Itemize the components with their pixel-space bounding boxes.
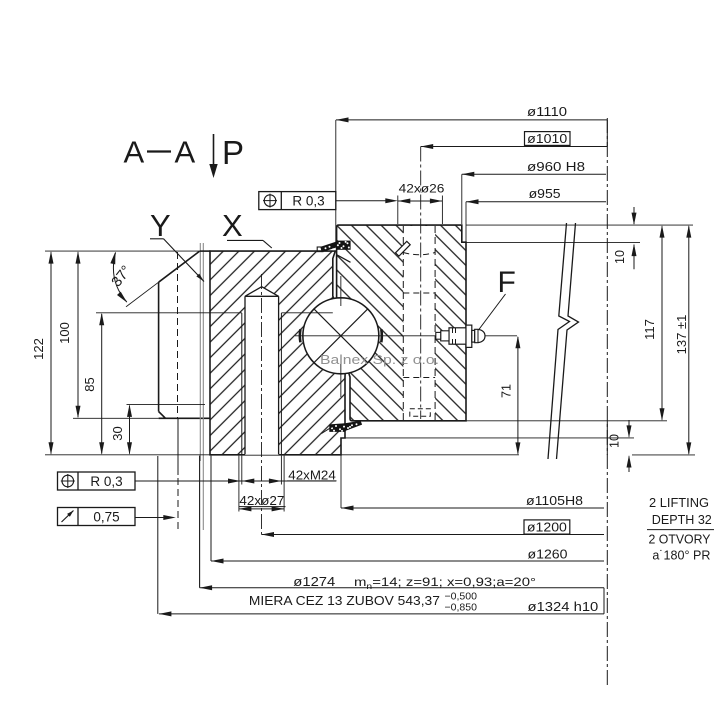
svg-text:ø1110: ø1110 [527,104,567,119]
svg-text:42xM24: 42xM24 [288,468,336,482]
svg-text:ø1105H8: ø1105H8 [526,493,583,508]
svg-text:MIERA CEZ 13 ZUBOV 543,37: MIERA CEZ 13 ZUBOV 543,37 [249,593,440,608]
svg-text:A: A [124,135,145,170]
svg-text:X: X [222,208,243,243]
svg-text:71: 71 [500,384,514,398]
svg-text:ø1200: ø1200 [527,519,567,534]
svg-text:10: 10 [608,434,622,448]
svg-text:ø955: ø955 [529,186,561,201]
svg-text:DEPTH 32: DEPTH 32 [652,513,712,527]
svg-text:10: 10 [613,250,627,264]
svg-text:117: 117 [642,319,657,340]
svg-text:100: 100 [57,322,72,344]
svg-text:Y: Y [150,208,171,243]
svg-text:A: A [175,135,196,170]
svg-text:R 0,3: R 0,3 [90,474,122,489]
svg-text:Balnex Sp. z o.o.: Balnex Sp. z o.o. [320,352,439,367]
svg-text:85: 85 [82,377,97,391]
svg-text:ø1010: ø1010 [527,131,567,146]
svg-text:ø1324 h10: ø1324 h10 [528,599,599,614]
svg-text:30: 30 [110,426,125,440]
svg-text:ø960 H8: ø960 H8 [527,159,585,174]
svg-text:a˙180° PR: a˙180° PR [652,549,710,563]
svg-text:ø1274: ø1274 [293,574,335,589]
svg-text:2 LIFTING: 2 LIFTING [649,496,709,510]
svg-text:ø1260: ø1260 [528,546,568,561]
svg-text:R 0,3: R 0,3 [292,194,324,209]
svg-text:P: P [222,134,244,171]
svg-text:−0,850: −0,850 [445,601,478,613]
svg-text:42xø26: 42xø26 [399,182,445,196]
svg-text:mn=14; z=91; x=0,93;a=20°: mn=14; z=91; x=0,93;a=20° [354,575,536,591]
svg-text:2 OTVORY: 2 OTVORY [649,533,712,547]
svg-text:0,75: 0,75 [93,510,119,525]
svg-text:137 ±1: 137 ±1 [674,315,689,355]
svg-text:F: F [498,266,516,299]
svg-text:122: 122 [31,338,46,360]
